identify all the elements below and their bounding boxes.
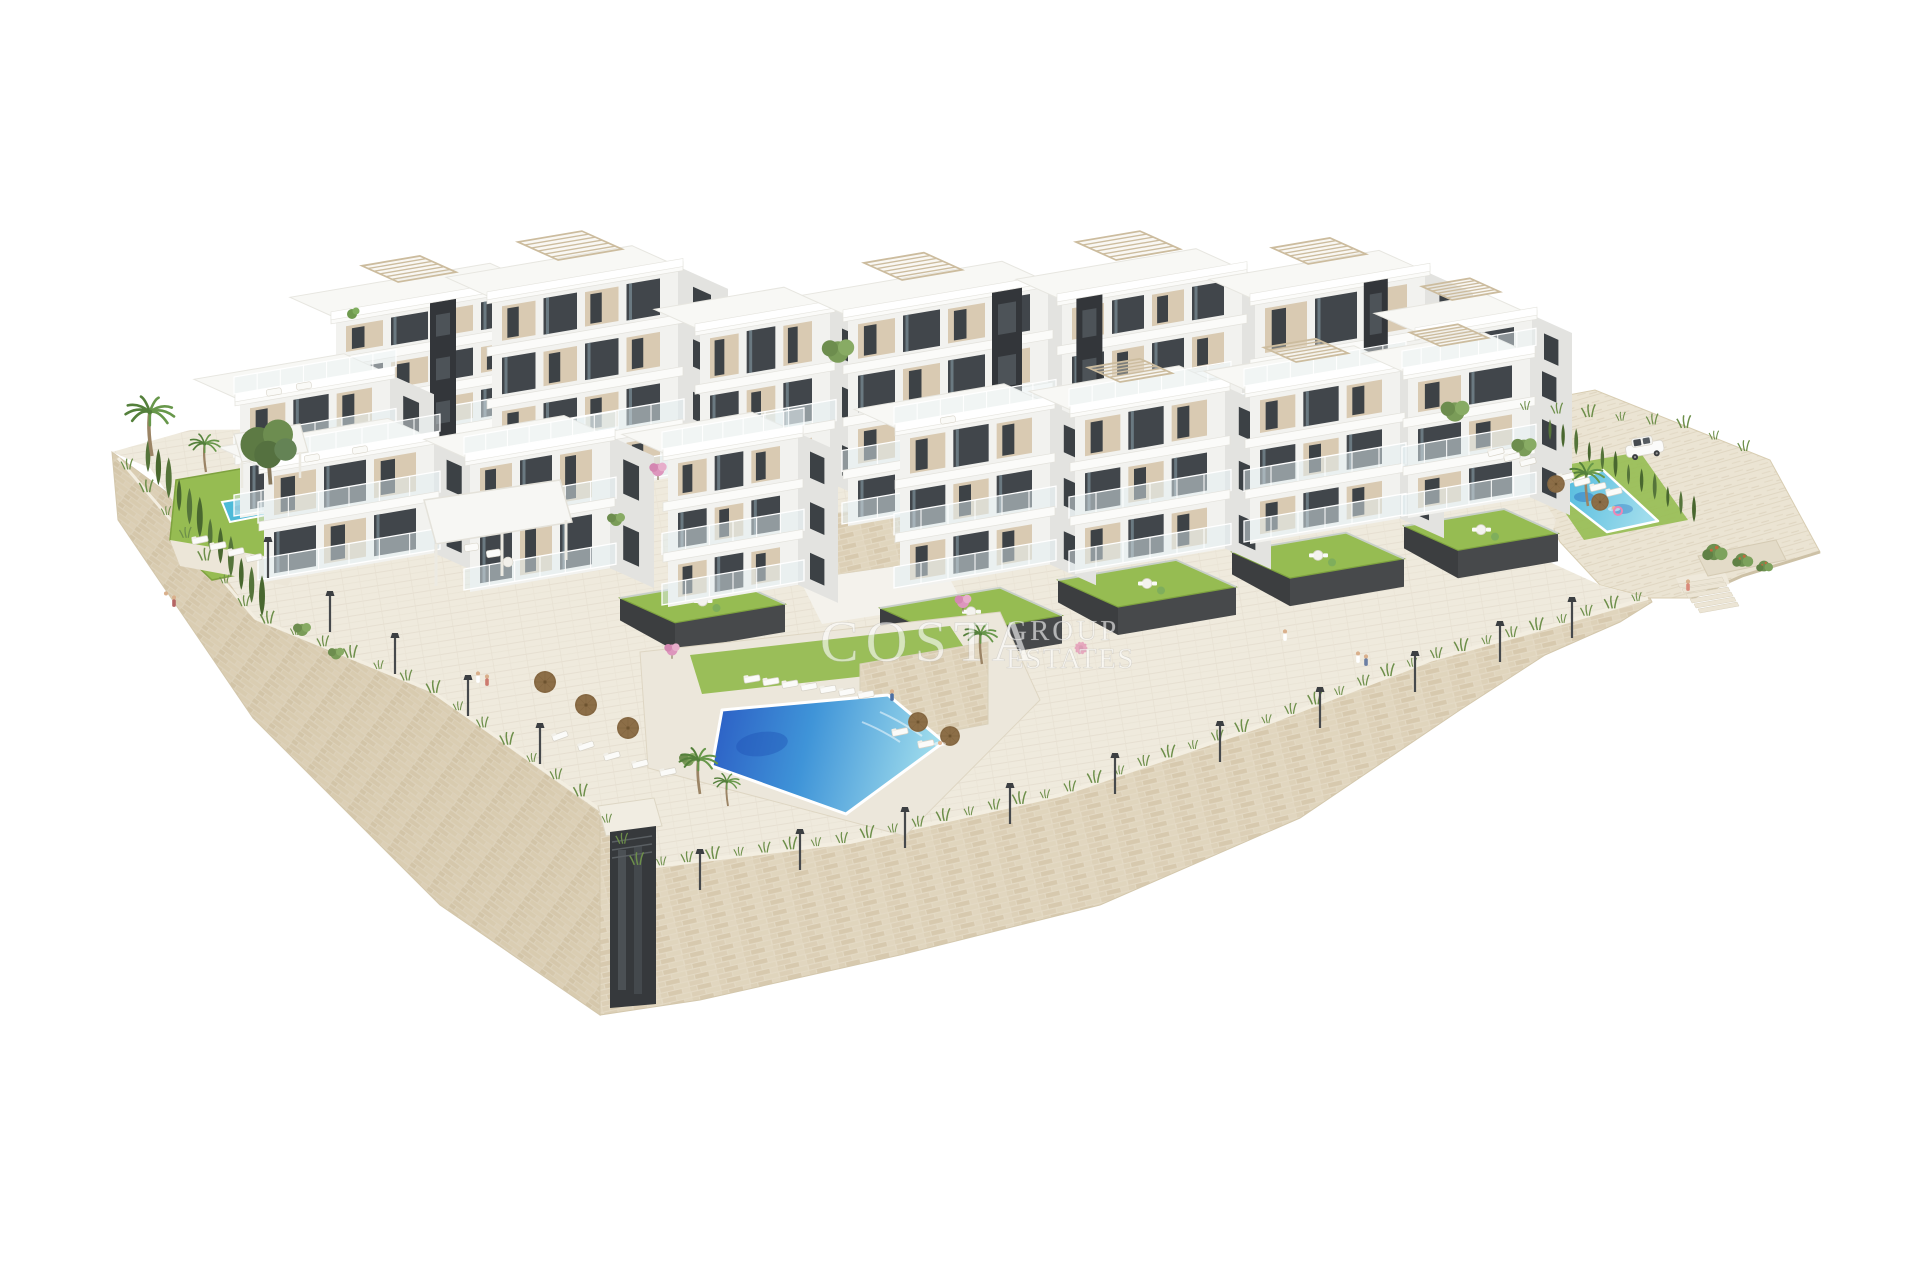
watermark: COSTA GROUP ESTATES	[820, 609, 1135, 675]
person	[164, 591, 168, 603]
person	[1686, 579, 1690, 591]
person	[172, 595, 176, 607]
person	[485, 674, 489, 686]
straw-parasol	[1547, 475, 1565, 493]
straw-parasol	[908, 712, 928, 732]
person	[890, 689, 894, 701]
residential-complex-render: COSTA GROUP ESTATES	[0, 0, 1920, 1280]
straw-parasol	[1591, 493, 1609, 511]
straw-parasol	[534, 671, 556, 693]
person	[476, 671, 480, 683]
straw-parasol	[617, 717, 639, 739]
person	[1364, 654, 1368, 666]
straw-parasol	[575, 694, 597, 716]
architectural-render-page: COSTA GROUP ESTATES	[0, 0, 1920, 1280]
secondary-pool-shadow	[1574, 492, 1594, 502]
person	[1356, 651, 1360, 663]
watermark-text-line2: ESTATES	[1006, 643, 1135, 675]
person	[1283, 629, 1287, 641]
